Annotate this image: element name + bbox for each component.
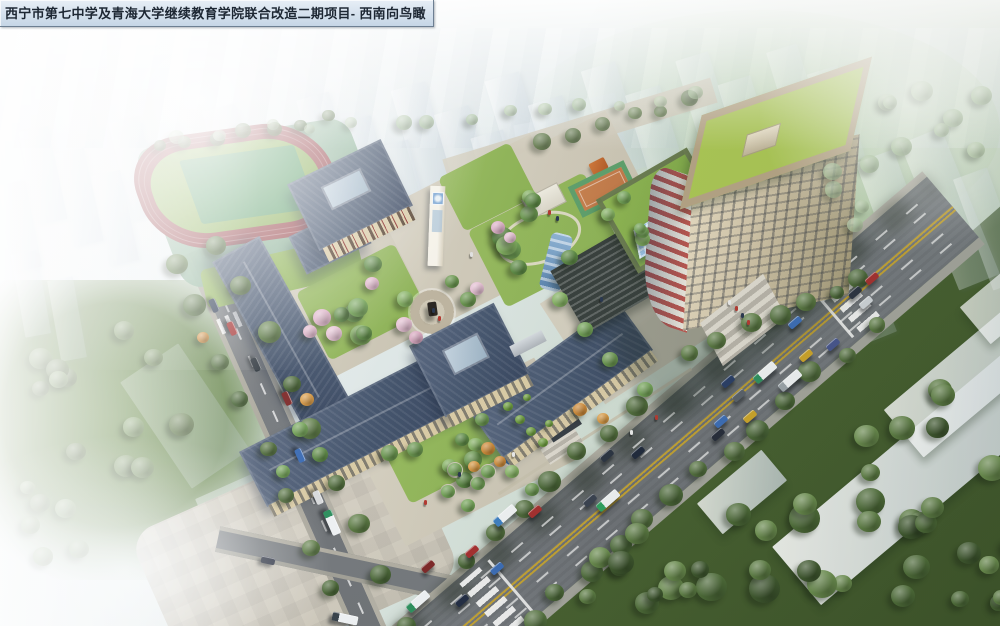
- tree: [561, 250, 578, 266]
- tree: [707, 332, 726, 350]
- tree: [494, 456, 506, 467]
- tree: [481, 465, 495, 478]
- tree: [746, 420, 769, 441]
- tree: [524, 610, 547, 626]
- tree: [839, 348, 856, 363]
- person: [735, 306, 738, 311]
- tree: [481, 442, 495, 455]
- tree: [793, 493, 817, 515]
- person: [512, 452, 515, 457]
- tree: [659, 484, 683, 506]
- tree: [545, 584, 564, 601]
- tree: [505, 465, 519, 478]
- person: [655, 415, 658, 420]
- person: [630, 430, 633, 435]
- tree: [724, 442, 745, 461]
- tree: [869, 317, 886, 332]
- tree: [538, 471, 561, 492]
- tree: [770, 305, 791, 324]
- tree: [471, 477, 485, 490]
- tree: [597, 413, 609, 424]
- tree: [461, 499, 475, 512]
- person: [600, 297, 603, 302]
- tree: [567, 442, 587, 460]
- tree: [681, 345, 698, 361]
- tree: [283, 376, 301, 392]
- tree: [525, 483, 539, 496]
- tree: [979, 556, 998, 574]
- tree: [861, 464, 880, 481]
- tree: [625, 523, 648, 544]
- tree: [978, 455, 1000, 481]
- tree: [903, 555, 930, 580]
- tree: [854, 425, 879, 448]
- person: [458, 472, 461, 477]
- tree: [889, 416, 914, 439]
- view-title: 西宁市第七中学及青海大学继续教育学院联合改造二期项目- 西南向鸟瞰: [0, 0, 434, 27]
- tree: [602, 352, 618, 367]
- tree: [475, 413, 489, 426]
- tree: [796, 293, 816, 312]
- haze-bottom-left: [0, 430, 340, 626]
- person: [741, 313, 744, 318]
- tree: [926, 417, 948, 437]
- tree: [441, 485, 455, 498]
- architectural-rendering-canvas: 西宁市第七中学及青海大学继续教育学院联合改造二期项目- 西南向鸟瞰: [0, 0, 1000, 626]
- tree: [617, 191, 631, 204]
- tree: [486, 524, 505, 541]
- person: [747, 320, 750, 325]
- tree: [830, 286, 844, 299]
- person: [424, 500, 427, 505]
- tree: [951, 591, 969, 608]
- tree: [577, 322, 593, 337]
- tree: [468, 461, 480, 472]
- tree: [455, 433, 469, 446]
- person: [728, 300, 731, 305]
- tree: [407, 442, 423, 457]
- tree: [300, 393, 314, 406]
- tree: [749, 560, 770, 580]
- tree: [931, 384, 955, 406]
- tree: [573, 403, 587, 416]
- tree: [857, 511, 880, 532]
- tree: [957, 542, 980, 564]
- tree: [798, 361, 821, 382]
- tree: [664, 561, 686, 581]
- tree: [726, 503, 750, 525]
- tree: [921, 497, 944, 518]
- tree: [637, 382, 653, 397]
